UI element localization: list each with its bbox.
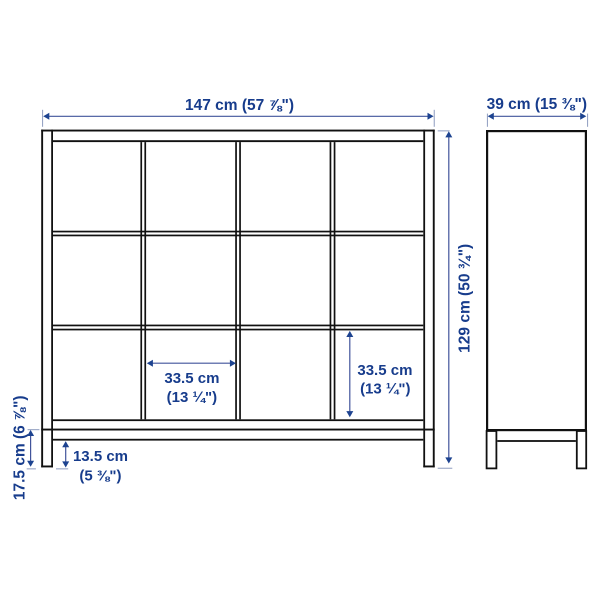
svg-text:33.5 cm: 33.5 cm <box>357 362 412 379</box>
svg-text:13.5 cm: 13.5 cm <box>73 448 128 465</box>
svg-text:(13 ¼"): (13 ¼") <box>167 389 217 406</box>
svg-text:17.5 cm (6 ⅞"): 17.5 cm (6 ⅞") <box>12 395 29 500</box>
svg-text:129 cm (50 ¾"): 129 cm (50 ¾") <box>457 244 474 353</box>
svg-text:39 cm (15 ⅜"): 39 cm (15 ⅜") <box>487 96 587 113</box>
svg-text:(5 ⅜"): (5 ⅜") <box>79 468 121 485</box>
svg-text:147 cm (57 ⅞"): 147 cm (57 ⅞") <box>185 97 294 114</box>
svg-text:(13 ¼"): (13 ¼") <box>360 380 410 397</box>
svg-text:33.5 cm: 33.5 cm <box>164 370 219 387</box>
